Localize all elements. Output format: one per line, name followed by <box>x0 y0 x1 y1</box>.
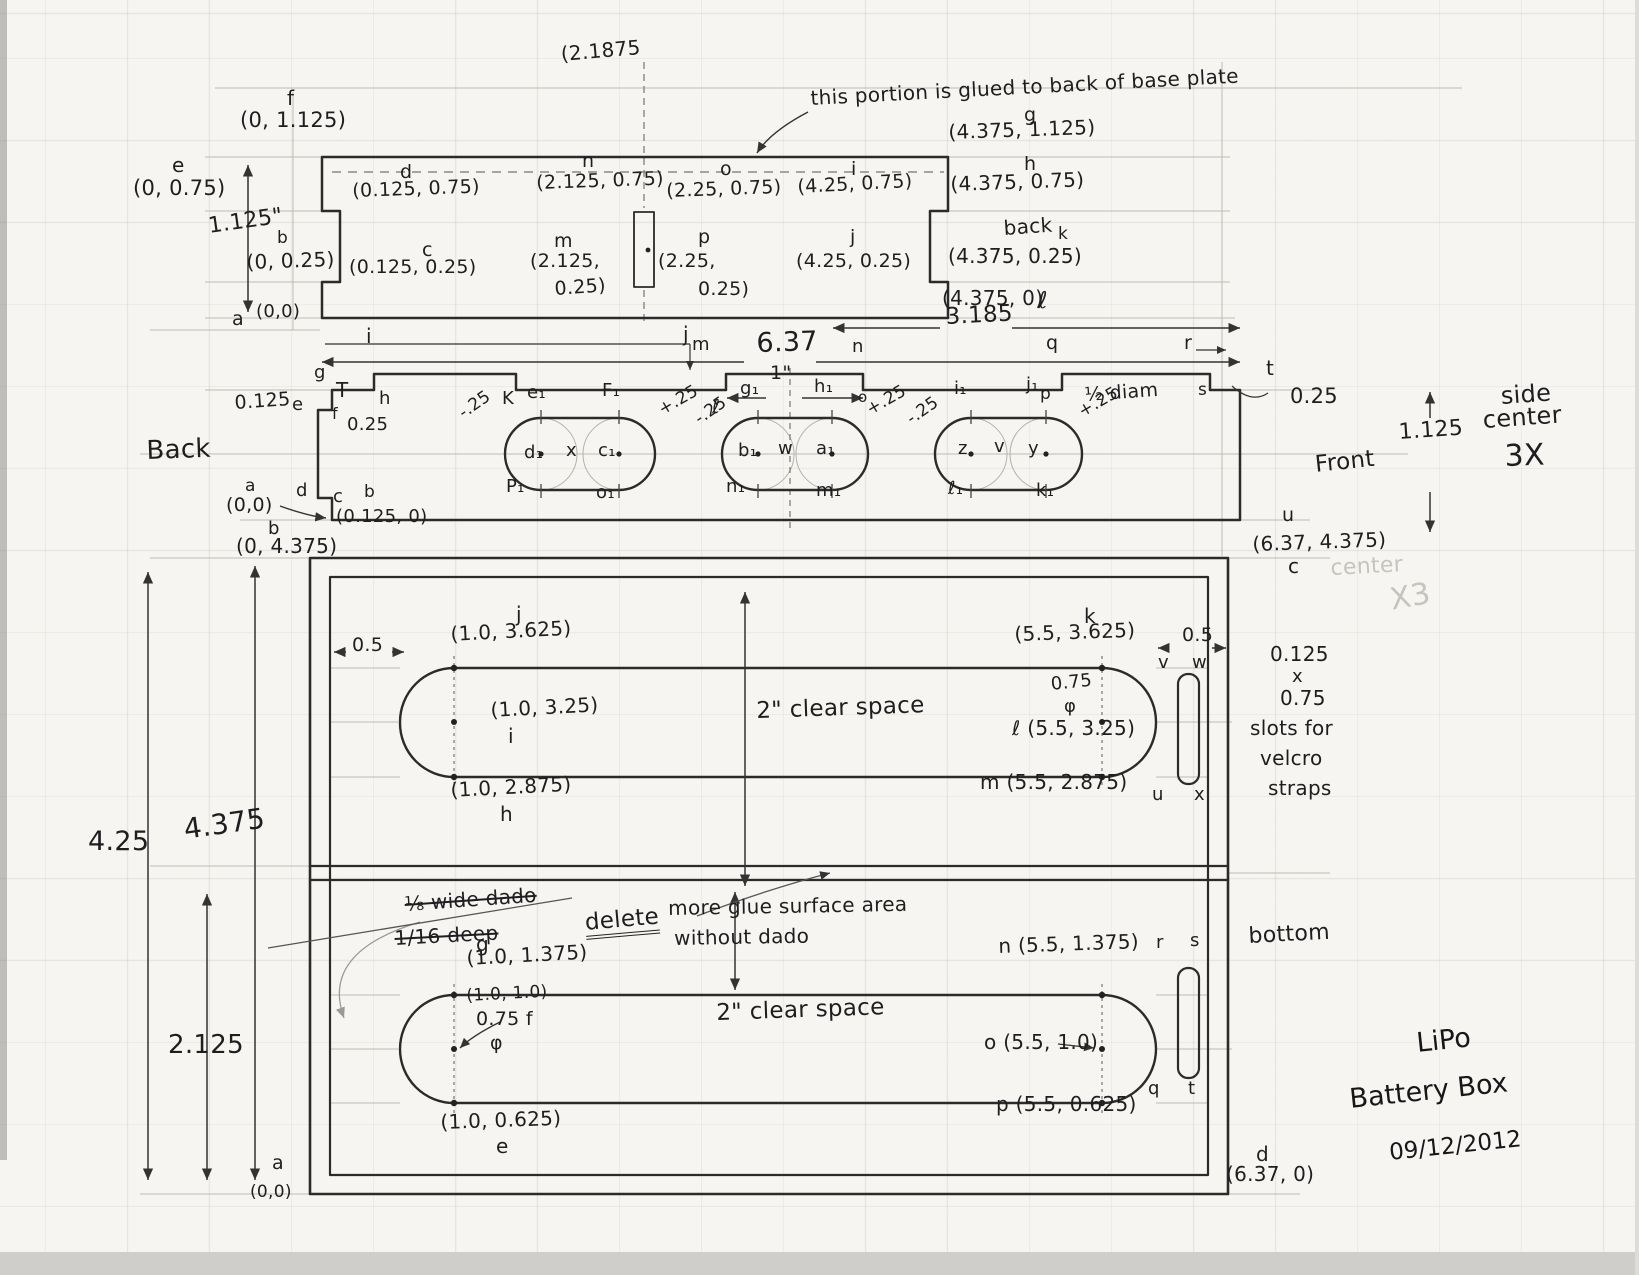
bv-coord-c: (6.37, 4.375) <box>1252 529 1387 554</box>
s1-f1: F₁ <box>602 382 620 400</box>
bottom-view-inner <box>330 577 1208 1175</box>
s2-h1: h₁ <box>814 378 833 396</box>
sv-coord-b: (0.125, 0) <box>336 508 427 526</box>
bv-coord-k: (5.5, 3.625) <box>1014 620 1136 644</box>
pt-f: f <box>287 88 294 108</box>
sv-pt-m: m <box>692 336 710 354</box>
velcro-note-1: 0.125 <box>1270 644 1329 664</box>
bv-coord-i: (1.0, 3.25) <box>490 694 599 720</box>
sv-pt-d: d <box>296 482 308 500</box>
bv-pt-c: c <box>1288 556 1299 576</box>
bv-dim-05-right: 0.5 <box>1182 626 1213 645</box>
sv-pt-K: K <box>502 390 514 408</box>
coord-f: (0, 1.125) <box>240 110 346 131</box>
pt-k: k <box>1058 226 1068 243</box>
s3-k1: k₁ <box>1036 482 1054 500</box>
sv-pt-g: g <box>314 364 326 382</box>
s3-l1: ℓ₁ <box>948 480 963 498</box>
sv-pt-s: s <box>1198 382 1207 399</box>
top-view-center-slot <box>634 212 654 287</box>
bv-coord-e: (1.0, 0.625) <box>440 1108 562 1132</box>
bv-pt-x: x <box>1194 786 1205 804</box>
bv-dim-075: 0.75 <box>1050 672 1093 694</box>
bv-pt-t: t <box>1188 1080 1195 1098</box>
lower-velcro-slot <box>1178 968 1199 1078</box>
s2-w: w <box>778 440 793 458</box>
guide-lines <box>140 62 1462 1194</box>
coord-p-line1: (2.25, <box>658 252 716 271</box>
pt-b: b <box>277 230 288 247</box>
glue-area-note-1: more glue surface area <box>668 894 908 918</box>
bv-pt-s: s <box>1190 932 1200 950</box>
s2-n1: n₁ <box>726 478 745 496</box>
glue-area-note-2: without dado <box>674 926 809 948</box>
bv-phi-lower: φ <box>490 1034 503 1053</box>
sv-tick-T: T <box>336 380 349 400</box>
s2-g1: g₁ <box>740 380 759 398</box>
ghost-x3: X3 <box>1388 579 1433 616</box>
sv-pt-n: n <box>852 338 864 356</box>
velcro-note-3: 0.75 <box>1280 688 1326 708</box>
ghost-center: center <box>1330 554 1404 580</box>
sv-pt-c: c <box>333 488 343 506</box>
s3-z: z <box>958 440 968 458</box>
bv-coord-o: o (5.5, 1.0) <box>984 1032 1098 1052</box>
sv-dim-025-left: 0.25 <box>347 416 388 434</box>
back-label: Back <box>146 436 211 464</box>
bv-dim-075-f: 0.75 f <box>476 1010 533 1029</box>
sv-dim-0125: 0.125 <box>234 390 291 413</box>
bv-coord-f: (1.0, 1.0) <box>466 984 548 1005</box>
s3-i1: i₁ <box>954 380 967 398</box>
bv-dim-05-left: 0.5 <box>352 636 383 655</box>
bv-coord-p: p (5.5, 0.625) <box>996 1094 1137 1114</box>
pt-l: ℓ <box>1038 290 1048 313</box>
side-caption-3: 3X <box>1504 441 1545 472</box>
coord-g: (4.375, 1.125) <box>948 117 1096 142</box>
velcro-note-4: slots for <box>1250 718 1333 738</box>
coord-c: (0.125, 0.25) <box>349 258 477 277</box>
bottom-label: bottom <box>1248 922 1330 948</box>
s2-a1: a₁ <box>816 440 835 458</box>
coord-a: (0,0) <box>256 303 300 321</box>
s1-c1: c₁ <box>598 442 616 460</box>
dim-1in: 1" <box>770 364 791 383</box>
s2-b1: b₁ <box>738 442 757 460</box>
bv-coord-b: (0, 4.375) <box>236 536 337 556</box>
clear-space-upper: 2" clear space <box>756 694 925 723</box>
coord-m-line1: (2.125, <box>530 252 600 271</box>
bv-pt-w: w <box>1192 654 1207 672</box>
drawing-sheet: (2.1875f(0, 1.125)e(0, 0.75)1.125"b(0, 0… <box>0 0 1639 1275</box>
sv-dim-025-right: 0.25 <box>1290 386 1338 407</box>
sv-pt-a: a <box>245 478 256 495</box>
s1-x: x <box>566 442 577 460</box>
pt-e: e <box>172 155 185 175</box>
bv-pt-r: r <box>1156 934 1164 952</box>
sv-pt-u: u <box>1282 506 1294 525</box>
s3-j1: j₁ <box>1026 376 1039 394</box>
coord-d: (0.125, 0.75) <box>352 178 480 201</box>
coord-m-line2: 0.25) <box>554 276 606 299</box>
bv-coord-g: (1.0, 1.375) <box>466 942 588 968</box>
centerlines <box>332 62 1102 1114</box>
coord-k: (4.375, 0.25) <box>948 246 1082 266</box>
sv-pt-p: p <box>1040 386 1051 403</box>
s1-e1: e₁ <box>527 384 546 402</box>
dim-425: 4.25 <box>88 828 149 855</box>
coord-j: (4.25, 0.25) <box>796 252 911 271</box>
sv-pt-j: j <box>683 324 689 344</box>
top-centerline-coord: (2.1875 <box>560 37 641 64</box>
sv-pt-f: f <box>332 406 338 422</box>
sv-pt-i: i <box>366 326 372 346</box>
bv-pt-u: u <box>1152 786 1164 804</box>
side-caption-2: center <box>1482 402 1562 431</box>
dim-637: 6.37 <box>756 328 818 357</box>
bv-pt-q: q <box>1148 1080 1160 1098</box>
coord-n: (2.125, 0.75) <box>536 170 664 193</box>
bv-pt-i: i <box>508 726 514 746</box>
coord-h: (4.375, 0.75) <box>950 169 1085 194</box>
velcro-note-2: x <box>1292 668 1303 686</box>
sv-pt-t: t <box>1266 358 1274 378</box>
s1-d1: d₁ <box>524 444 543 462</box>
s1-o1: o₁ <box>596 484 615 502</box>
s3-y: y <box>1028 440 1039 458</box>
pt-j: j <box>850 228 856 247</box>
bv-coord-j: (1.0, 3.625) <box>450 618 572 644</box>
s1-p1: P₁ <box>506 478 525 496</box>
coord-p-line2: 0.25) <box>698 280 749 299</box>
pt-m: m <box>554 232 573 251</box>
back-note: back <box>1003 215 1053 238</box>
sv-pt-e: e <box>292 396 303 414</box>
bv-pt-d: d <box>1256 1144 1269 1164</box>
title-line-1: LiPo <box>1415 1022 1472 1059</box>
coord-b: (0, 0.25) <box>246 249 335 272</box>
bv-pt-v: v <box>1158 654 1169 672</box>
bv-phi-upper: φ <box>1064 698 1076 716</box>
sv-coord-a: (0,0) <box>226 496 273 515</box>
bv-coord-d: (6.37, 0) <box>1226 1164 1314 1184</box>
pt-o: o <box>720 160 732 179</box>
dim-3185: 3.185 <box>945 302 1013 328</box>
sv-pt-h: h <box>379 390 391 408</box>
pt-a: a <box>232 310 244 329</box>
velcro-note-5: velcro <box>1260 748 1323 768</box>
sv-pt-r: r <box>1184 334 1192 353</box>
s2-m1: m₁ <box>816 482 841 500</box>
bv-coord-l: ℓ (5.5, 3.25) <box>1012 718 1135 738</box>
sv-pt-b: b <box>364 484 375 501</box>
bv-coord-h: (1.0, 2.875) <box>450 774 572 800</box>
coord-e: (0, 0.75) <box>133 178 226 199</box>
pt-n: n <box>582 152 594 171</box>
dim-2125: 2.125 <box>168 1032 244 1058</box>
upper-velcro-slot <box>1178 674 1199 784</box>
bv-coord-a: (0,0) <box>250 1184 292 1201</box>
bv-pt-h: h <box>500 804 513 824</box>
front-label: Front <box>1314 448 1376 477</box>
part-outlines <box>310 157 1240 1194</box>
bottom-view-divider <box>310 866 1228 880</box>
bv-coord-m: m (5.5, 2.875) <box>980 772 1127 792</box>
clear-space-lower: 2" clear space <box>716 996 885 1025</box>
bv-pt-a: a <box>272 1154 284 1173</box>
sv-dim-1125: 1.125 <box>1398 418 1464 444</box>
bv-pt-e: e <box>496 1136 509 1156</box>
s3-v: v <box>994 438 1005 456</box>
pt-p: p <box>698 228 710 247</box>
sv-pt-q: q <box>1046 334 1058 353</box>
bv-coord-n: n (5.5, 1.375) <box>998 931 1139 956</box>
velcro-note-6: straps <box>1268 778 1332 798</box>
coord-o: (2.25, 0.75) <box>666 178 782 201</box>
